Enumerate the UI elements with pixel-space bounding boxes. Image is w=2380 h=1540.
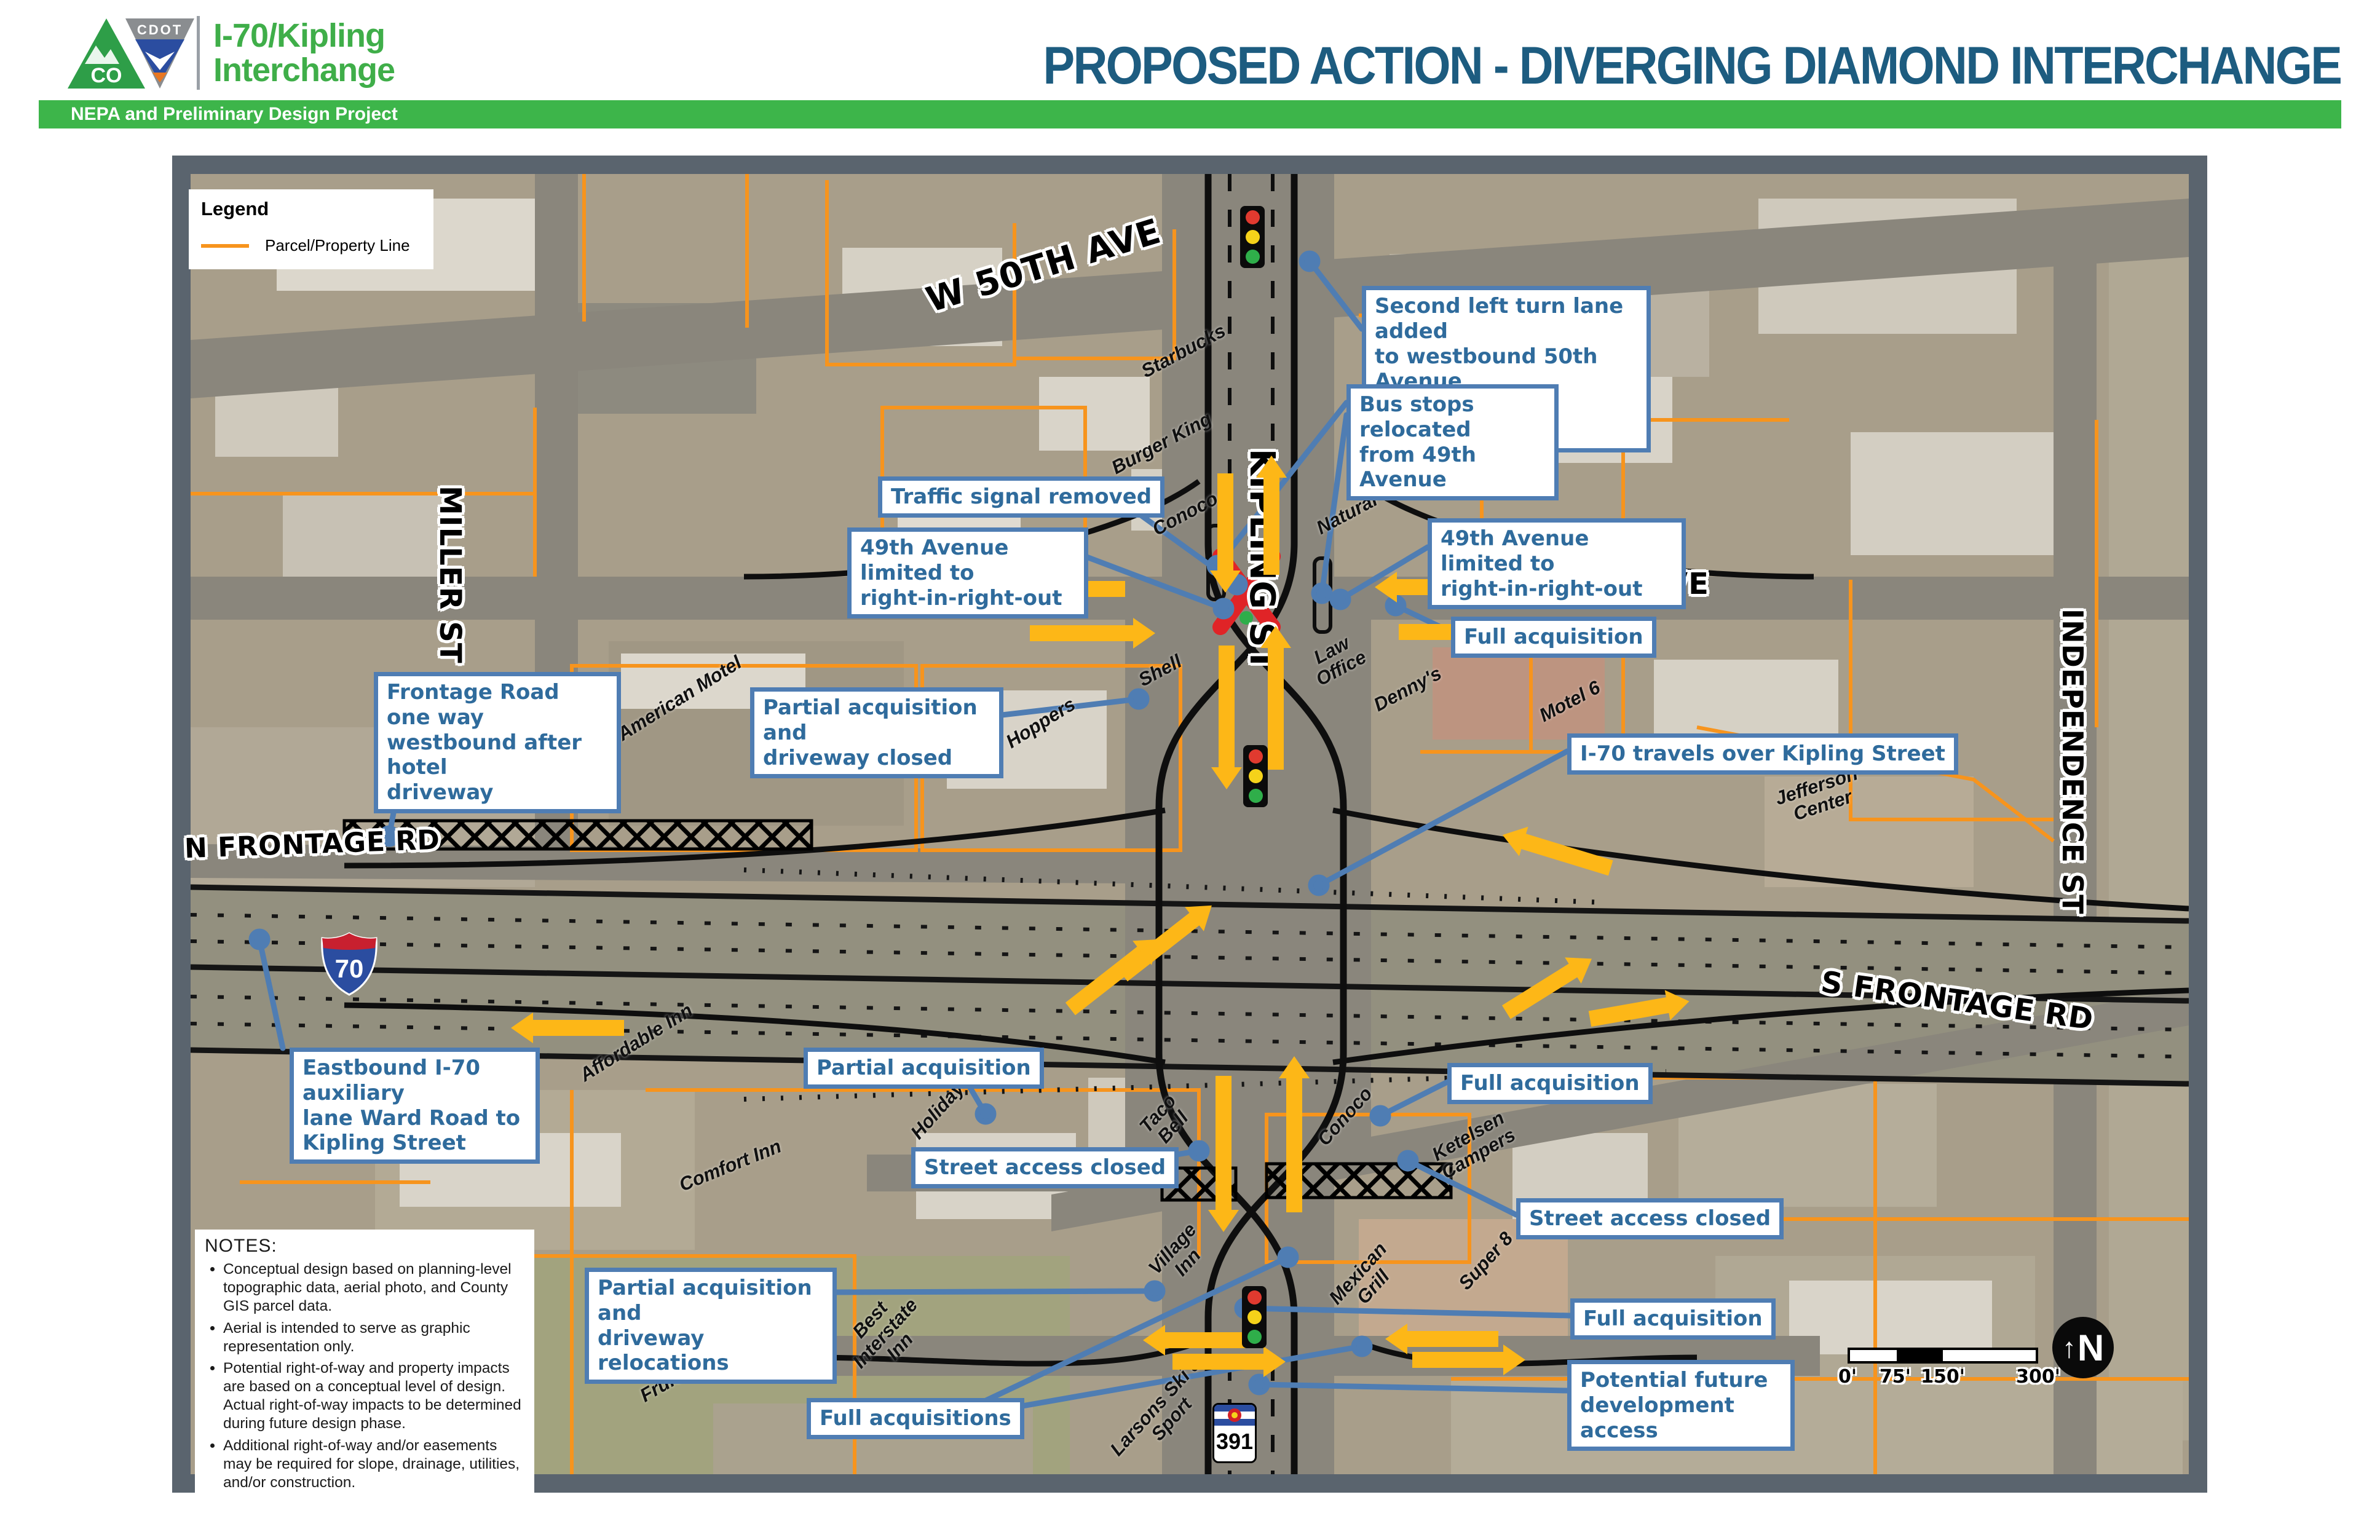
callout-frontage-one-way: Frontage Road one way westbound after ho… (374, 672, 621, 813)
callout-potential-future-access: Potential future development access (1567, 1360, 1795, 1451)
callout-eb-aux-lane: Eastbound I-70 auxiliary lane Ward Road … (290, 1048, 540, 1164)
flow-arrow-east (1030, 625, 1134, 641)
note-bullet: Conceptual design based on planning-leve… (223, 1260, 524, 1316)
flow-arrow-north (1286, 1077, 1302, 1212)
route-391-shield: 391 (1212, 1403, 1257, 1463)
street-label-independence-st: INDEPENDENCE ST (2056, 609, 2089, 915)
callout-street-access-closed-east: Street access closed (1516, 1198, 1784, 1239)
notes-title: NOTES: (205, 1236, 524, 1257)
callout-i70-over-kipling: I-70 travels over Kipling Street (1567, 733, 1958, 775)
traffic-signal-north-crossover (1243, 745, 1268, 807)
callout-49th-limited-west: 49th Avenue limited to right-in-right-ou… (847, 527, 1088, 618)
flow-arrow-east (1172, 1354, 1265, 1370)
north-arrow: ↑N (2052, 1317, 2114, 1378)
svg-text:CO: CO (91, 64, 122, 87)
svg-text:70: 70 (335, 954, 364, 983)
flow-arrow-north (1263, 476, 1279, 575)
parcel-line-swatch (201, 244, 249, 248)
callout-street-access-closed-west: Street access closed (911, 1147, 1179, 1188)
note-bullet: Additional right-of-way and/or easements… (223, 1437, 524, 1492)
callout-partial-acquisition: Partial acquisition (804, 1048, 1044, 1089)
flow-arrow-north (1268, 647, 1284, 770)
legend-title: Legend (201, 198, 421, 220)
callout-49th-limited-east: 49th Avenue limited to right-in-right-ou… (1428, 518, 1686, 609)
notes-box: NOTES: Conceptual design based on planni… (195, 1230, 534, 1507)
callout-full-acquisition-conoco: Full acquisition (1447, 1063, 1653, 1104)
legend: Legend Parcel/Property Line (189, 189, 433, 269)
callout-full-acquisitions: Full acquisitions (807, 1398, 1024, 1439)
traffic-signal-50th (1240, 206, 1265, 268)
callout-bus-stops-relocated: Bus stops relocated from 49th Avenue (1346, 384, 1559, 500)
project-title: I-70/Kipling Interchange (197, 16, 395, 90)
callout-partial-acq-driveway-closed: Partial acquisition and driveway closed (750, 687, 1003, 778)
flow-arrow-south (1216, 1076, 1232, 1211)
note-bullet: Potential right-of-way and property impa… (223, 1359, 524, 1433)
legend-item: Parcel/Property Line (201, 236, 421, 255)
sheet: CO CDOT I-70/Kipling Interchange PROPOSE… (0, 0, 2380, 1540)
interstate-70-shield: 70 (321, 932, 378, 996)
colorado-flag (1214, 1405, 1255, 1426)
flow-arrow-east (1412, 1352, 1504, 1368)
street-label-miller-st: MILLER ST (433, 486, 467, 664)
svg-text:CDOT: CDOT (137, 22, 183, 38)
subtitle-bar: NEPA and Preliminary Design Project (39, 100, 2341, 128)
scale-bar: 0' 75' 150' 300' (1848, 1348, 2038, 1391)
flow-arrow-south (1219, 646, 1235, 768)
flow-arrow-south (1217, 473, 1233, 572)
flow-arrow-frontage-west (532, 1020, 624, 1036)
flow-arrow-west (1406, 1331, 1498, 1347)
north-arrow-icon: ↑ (2062, 1331, 2076, 1364)
callout-full-acquisition-mexican-grill: Full acquisition (1570, 1298, 1776, 1340)
note-bullet: Aerial is intended to serve as graphic r… (223, 1319, 524, 1356)
traffic-signal-south-crossover (1242, 1286, 1267, 1348)
callout-traffic-signal-removed: Traffic signal removed (878, 476, 1164, 518)
callout-partial-acq-driveway-relocations: Partial acquisition and driveway relocat… (585, 1268, 837, 1384)
callout-full-acquisition-49th: Full acquisition (1451, 617, 1656, 658)
page-title: PROPOSED ACTION - DIVERGING DIAMOND INTE… (1043, 36, 2341, 97)
